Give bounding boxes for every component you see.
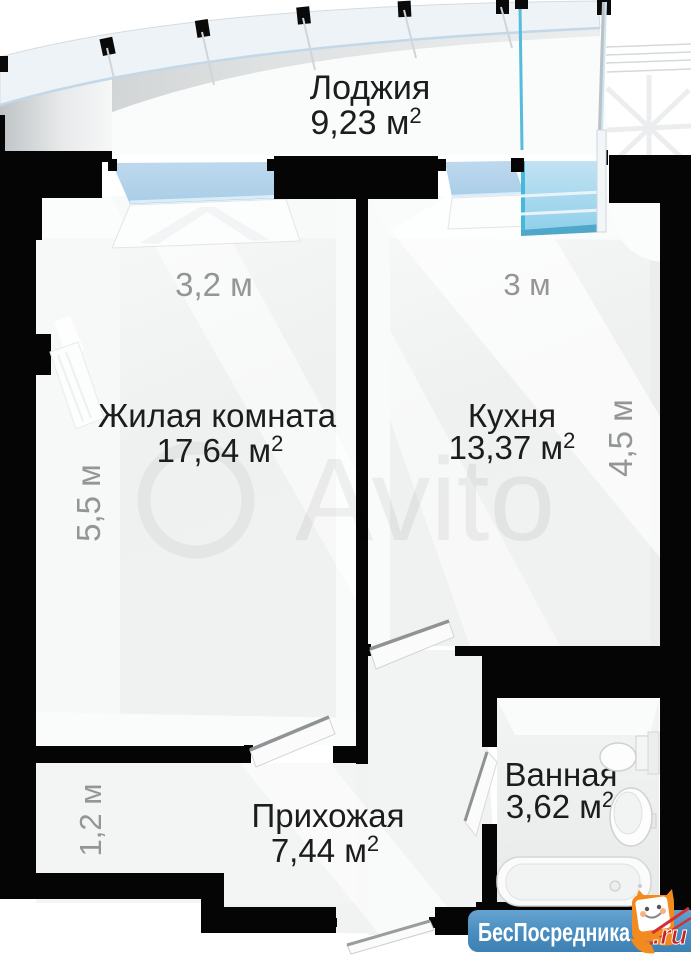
svg-text:Прихожая: Прихожая bbox=[252, 797, 405, 834]
svg-text:Жилая комната: Жилая комната bbox=[98, 397, 337, 434]
svg-text:9,23 м2: 9,23 м2 bbox=[310, 103, 421, 142]
svg-text:17,64 м2: 17,64 м2 bbox=[157, 431, 284, 469]
svg-text:3,62 м2: 3,62 м2 bbox=[506, 787, 614, 825]
svg-text:3,2 м: 3,2 м bbox=[175, 266, 253, 303]
svg-text:БесПосредника: БесПосредника bbox=[478, 917, 630, 947]
svg-text:4,5 м: 4,5 м bbox=[602, 399, 639, 477]
svg-text:Лоджия: Лоджия bbox=[310, 69, 430, 107]
svg-text:3 м: 3 м bbox=[503, 267, 550, 302]
svg-text:5,5 м: 5,5 м bbox=[70, 464, 107, 542]
svg-text:13,37 м2: 13,37 м2 bbox=[449, 428, 576, 466]
svg-text:7,44 м2: 7,44 м2 bbox=[271, 831, 379, 869]
svg-text:.ru: .ru bbox=[653, 920, 688, 950]
svg-text:1,2 м: 1,2 м bbox=[73, 783, 108, 856]
